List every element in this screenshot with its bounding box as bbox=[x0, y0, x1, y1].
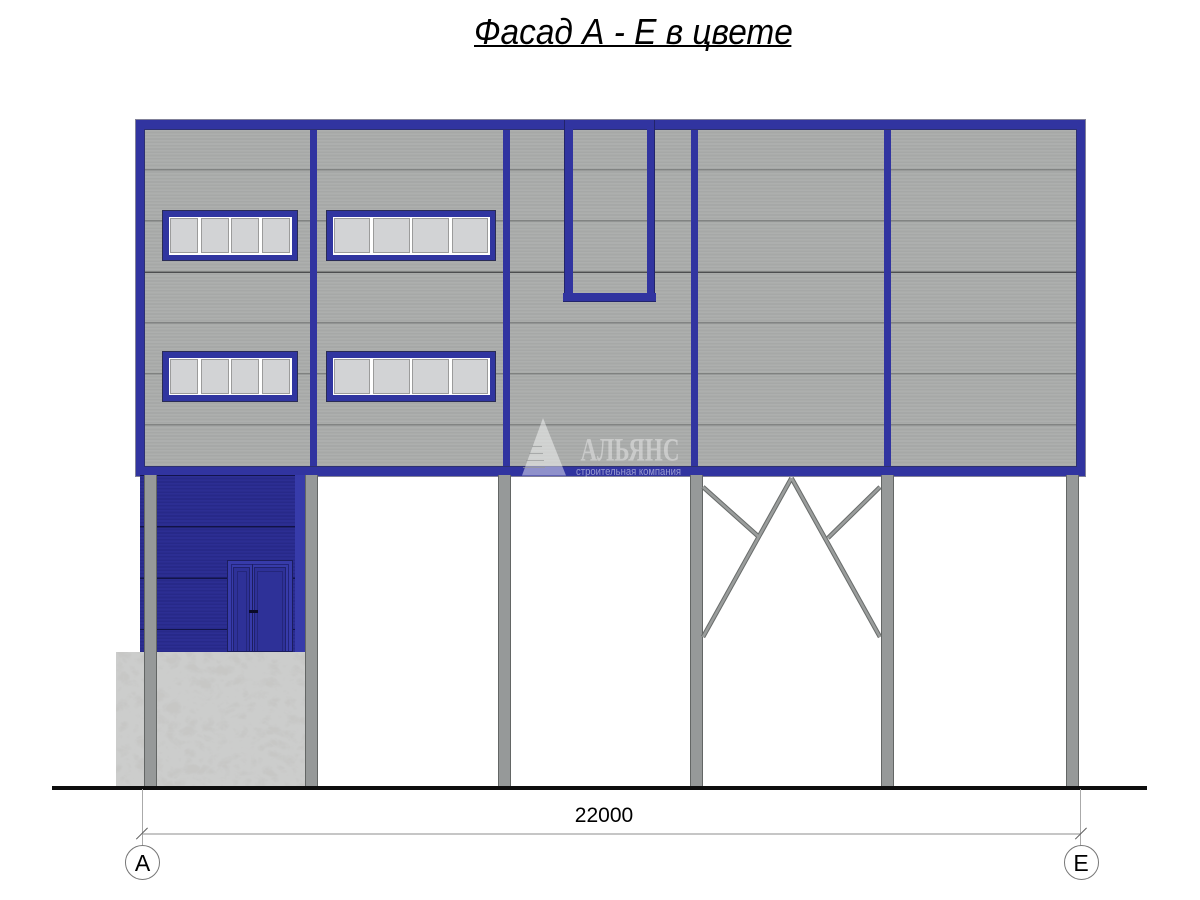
svg-text:АЛЬЯНС: АЛЬЯНС bbox=[581, 433, 680, 469]
svg-text:строительная компания: строительная компания bbox=[576, 466, 681, 478]
